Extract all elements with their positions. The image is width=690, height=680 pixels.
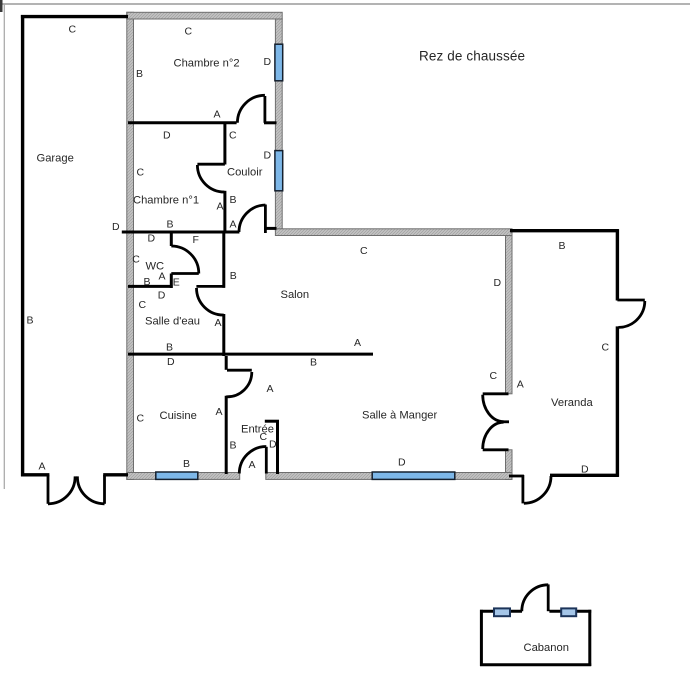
svg-text:D: D bbox=[269, 439, 277, 451]
svg-text:Rez de chaussée: Rez de chaussée bbox=[419, 49, 525, 64]
svg-text:C: C bbox=[260, 431, 268, 443]
svg-text:D: D bbox=[148, 233, 156, 245]
svg-text:B: B bbox=[136, 68, 143, 80]
svg-text:Cabanon: Cabanon bbox=[524, 642, 569, 654]
svg-text:C: C bbox=[360, 245, 368, 257]
svg-text:A: A bbox=[159, 271, 166, 283]
svg-text:B: B bbox=[183, 458, 190, 470]
svg-text:D: D bbox=[163, 130, 171, 142]
svg-text:Entrée: Entrée bbox=[241, 424, 274, 436]
svg-text:Salle d'eau: Salle d'eau bbox=[145, 316, 200, 328]
svg-text:C: C bbox=[602, 342, 610, 354]
svg-text:C: C bbox=[69, 24, 77, 36]
svg-text:C: C bbox=[490, 370, 498, 382]
svg-text:A: A bbox=[217, 201, 224, 213]
svg-text:D: D bbox=[494, 277, 502, 289]
svg-text:Garage: Garage bbox=[37, 152, 74, 164]
svg-text:D: D bbox=[398, 457, 406, 469]
svg-text:C: C bbox=[132, 254, 140, 266]
svg-text:D: D bbox=[158, 289, 166, 301]
svg-text:A: A bbox=[39, 461, 46, 473]
svg-text:C: C bbox=[137, 167, 145, 179]
svg-text:F: F bbox=[193, 234, 199, 246]
svg-text:B: B bbox=[27, 315, 34, 327]
svg-text:A: A bbox=[354, 337, 361, 349]
svg-text:Cuisine: Cuisine bbox=[160, 410, 197, 422]
svg-text:Couloir: Couloir bbox=[227, 167, 263, 179]
svg-text:A: A bbox=[249, 459, 256, 471]
svg-text:A: A bbox=[230, 219, 237, 231]
svg-text:B: B bbox=[144, 276, 151, 288]
svg-text:A: A bbox=[215, 317, 222, 329]
svg-text:Salon: Salon bbox=[281, 289, 310, 301]
svg-text:Chambre n°1: Chambre n°1 bbox=[133, 195, 199, 207]
svg-text:D: D bbox=[112, 221, 120, 233]
svg-text:A: A bbox=[267, 383, 274, 395]
svg-text:Veranda: Veranda bbox=[551, 397, 593, 409]
svg-text:B: B bbox=[310, 357, 317, 369]
svg-text:B: B bbox=[230, 194, 237, 206]
svg-text:B: B bbox=[559, 240, 566, 252]
svg-text:A: A bbox=[214, 109, 221, 121]
svg-text:C: C bbox=[139, 299, 147, 311]
svg-text:D: D bbox=[581, 464, 589, 476]
svg-text:B: B bbox=[230, 270, 237, 282]
svg-text:C: C bbox=[137, 413, 145, 425]
svg-text:E: E bbox=[173, 277, 180, 289]
svg-text:A: A bbox=[216, 406, 223, 418]
svg-text:B: B bbox=[166, 342, 173, 354]
svg-text:B: B bbox=[230, 440, 237, 452]
svg-text:D: D bbox=[167, 356, 175, 368]
svg-text:Chambre n°2: Chambre n°2 bbox=[174, 58, 240, 70]
svg-text:C: C bbox=[185, 26, 193, 38]
svg-text:Salle à Manger: Salle à Manger bbox=[362, 410, 438, 422]
svg-text:C: C bbox=[229, 130, 237, 142]
svg-text:B: B bbox=[167, 219, 174, 231]
svg-text:D: D bbox=[264, 150, 272, 162]
svg-text:D: D bbox=[264, 56, 272, 68]
svg-text:A: A bbox=[517, 379, 524, 391]
